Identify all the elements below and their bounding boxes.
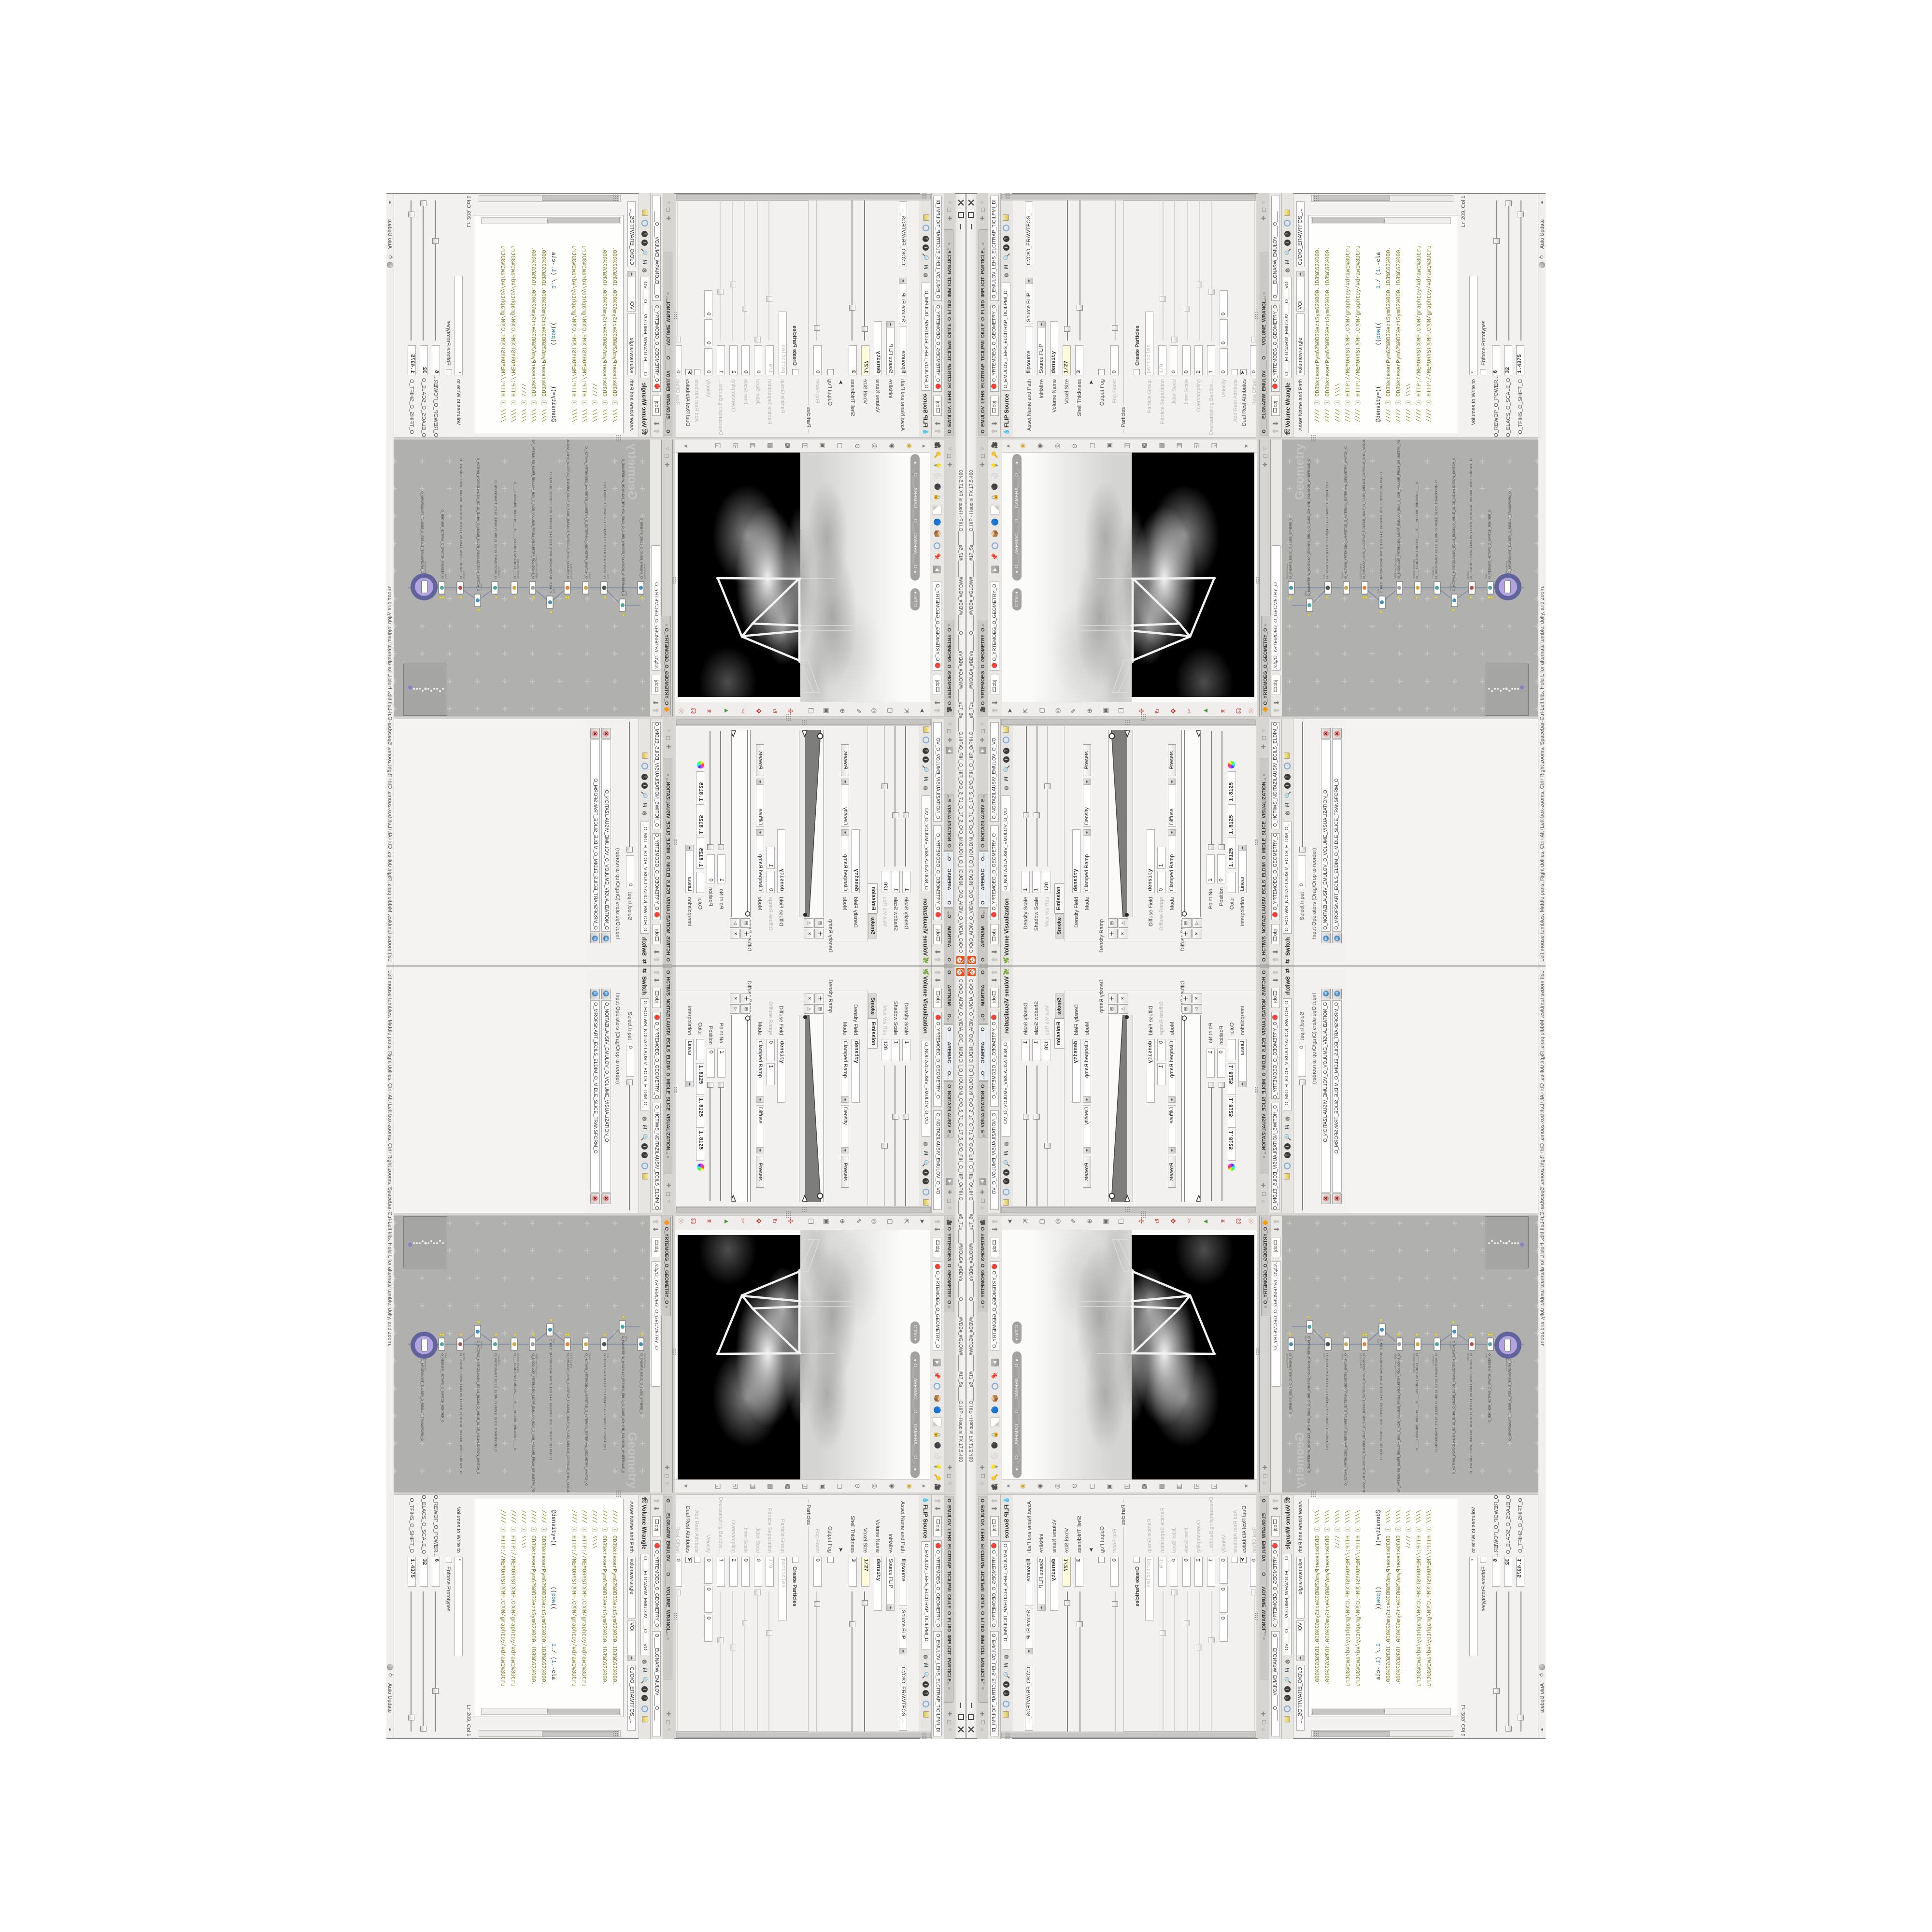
svg-text:O_SNOGILOP_YRTEMOEG_MORF_EMULO: O_SNOGILOP_YRTEMOEG_MORF_EMULOV_BDV_O_VD… bbox=[1397, 440, 1401, 579]
svg-text:O_HCTIWS_NOITAZILAUSIV_ECILS_E: O_HCTIWS_NOITAZILAUSIV_ECILS_ELDIM_O_MID… bbox=[476, 1341, 480, 1474]
svg-text:Volume Wrangle: Volume Wrangle bbox=[516, 1353, 519, 1373]
svg-text:Merge: Merge bbox=[462, 1353, 465, 1361]
svg-text:O_EMULOV_LEHS_ELCITRAP_TICILPM: O_EMULOV_LEHS_ELCITRAP_TICILPMI_DIULF_O_… bbox=[566, 1353, 569, 1492]
svg-text:O_MROFSNART_ECILS_ELDIM_O_MIDL: O_MROFSNART_ECILS_ELDIM_O_MIDLE_SLICE_TR… bbox=[1435, 480, 1438, 579]
svg-text:O_MROFSNART_TLUSER_O_RESULT_TR: O_MROFSNART_TLUSER_O_RESULT_TRANSFORM_O bbox=[420, 491, 424, 573]
svg-text:Merge: Merge bbox=[462, 571, 465, 579]
svg-text:Clip: Clip bbox=[552, 1339, 555, 1343]
svg-text:FLIP Source: FLIP Source bbox=[569, 564, 572, 579]
svg-text:Switch: Switch bbox=[588, 1353, 591, 1361]
svg-text:O_HCTIWS_YRTEMOEG_LANRETXE_O_I: O_HCTIWS_YRTEMOEG_LANRETXE_O_INTERNAL_EX… bbox=[1344, 1353, 1348, 1486]
svg-text:O____ELGNARW_EMULOV____O____VO: O____ELGNARW_EMULOV____O____VOLUME_WRANG… bbox=[1416, 482, 1419, 579]
svg-text:O_EMULOV_LEHS_ELCITRAP_TICILPM: O_EMULOV_LEHS_ELCITRAP_TICILPMI_DIULF_O_… bbox=[566, 440, 569, 579]
svg-text:Volume Wrangle: Volume Wrangle bbox=[516, 559, 519, 579]
svg-text:O_EMARFERIW_NOGYLOP_EREHPS_EBU: O_EMARFERIW_NOGYLOP_EREHPS_EBUC_O_CUBE_S… bbox=[621, 459, 625, 596]
svg-text:O_REDNER_HCTIWS_O_SWITCH_RENDE: O_REDNER_HCTIWS_O_SWITCH_RENDER_O bbox=[1488, 510, 1492, 579]
svg-text:O_ECAFRUS_HTIW_EMULOV_EGREM_O_: O_ECAFRUS_HTIW_EMULOV_EGREM_O_MERGE_VOLU… bbox=[1470, 458, 1473, 579]
svg-text:O_PILC_DNUORGKCAB_PIRTS_ECILS★: O_PILC_DNUORGKCAB_PIRTS_ECILS★O_GNIDDES_… bbox=[549, 1339, 553, 1460]
svg-text:O_EREHPS_EBUC_O_CUBE_SPHERE_O: O_EREHPS_EBUC_O_CUBE_SPHERE_O bbox=[639, 1353, 643, 1414]
svg-text:CubeSphere: CubeSphere bbox=[643, 1353, 646, 1368]
svg-text:O_BJO.8DV★O_8BD.PETS.TRIP★LS_O: O_BJO.8DV★O_8BD.PETS.TRIP★LS_O.SLDPRT.ST… bbox=[1325, 1353, 1329, 1450]
svg-text:O_EMARFERIW_NOGYLOP_EREHPS_EBU: O_EMARFERIW_NOGYLOP_EREHPS_EBUC_O_CUBE_S… bbox=[1307, 1336, 1311, 1473]
svg-text:O____ELGNARW_EMULOV____O____VO: O____ELGNARW_EMULOV____O____VOLUME_WRANG… bbox=[1416, 1353, 1419, 1450]
svg-text:O_PILC_DNUORGKCAB_PIRTS_ECILS★: O_PILC_DNUORGKCAB_PIRTS_ECILS★O_GNIDDES_… bbox=[1379, 1339, 1383, 1460]
svg-text:O_MROFSNART_ECILS_ELDIM_O_MIDL: O_MROFSNART_ECILS_ELDIM_O_MIDLE_SLICE_TR… bbox=[494, 1353, 497, 1452]
svg-text:O_MROFSNART_TLUSER_O_RESULT_TR: O_MROFSNART_TLUSER_O_RESULT_TRANSFORM_O bbox=[1508, 491, 1512, 573]
svg-text:O_EMULOV_LEHS_ELCITRAP_TICILPM: O_EMULOV_LEHS_ELCITRAP_TICILPMI_DIULF_O_… bbox=[1363, 1353, 1366, 1492]
svg-text:Switch: Switch bbox=[480, 583, 483, 591]
svg-text:FLIP Source: FLIP Source bbox=[569, 1353, 572, 1368]
svg-text:O_SNOGILOP_YRTEMOEG_MORF_EMULO: O_SNOGILOP_YRTEMOEG_MORF_EMULOV_BDV_O_VD… bbox=[1397, 1353, 1401, 1492]
svg-text:O_HCTIWS_YRTEMOEG_LANRETXE_O_I: O_HCTIWS_YRTEMOEG_LANRETXE_O_INTERNAL_EX… bbox=[584, 446, 588, 579]
svg-text:O_HCTIWS_NOITAZILAUSIV_ECILS_E: O_HCTIWS_NOITAZILAUSIV_ECILS_ELDIM_O_MID… bbox=[476, 458, 480, 591]
svg-text:File: File bbox=[606, 1353, 609, 1358]
svg-text:Null: Null bbox=[444, 574, 447, 579]
svg-text:O_SNOGILOP_YRTEMOEG_MORF_EMULO: O_SNOGILOP_YRTEMOEG_MORF_EMULOV_BDV_O_VD… bbox=[531, 440, 535, 579]
svg-text:O_HCTIWS_YRTEMOEG_LANRETXE_O_I: O_HCTIWS_YRTEMOEG_LANRETXE_O_INTERNAL_EX… bbox=[584, 1353, 588, 1486]
svg-text:O_PILC_DNUORGKCAB_PIRTS_ECILS★: O_PILC_DNUORGKCAB_PIRTS_ECILS★O_GNIDDES_… bbox=[549, 472, 553, 593]
svg-text:O_SNOGILOP_YRTEMOEG_MORF_EMULO: O_SNOGILOP_YRTEMOEG_MORF_EMULOV_BDV_O_VD… bbox=[531, 1353, 535, 1492]
svg-text:O_EREHPS_EBUC_O_CUBE_SPHERE_O: O_EREHPS_EBUC_O_CUBE_SPHERE_O bbox=[639, 518, 643, 579]
svg-text:O_REDNER_HCTIWS_O_SWITCH_RENDE: O_REDNER_HCTIWS_O_SWITCH_RENDER_O bbox=[440, 510, 444, 579]
svg-text:O_REDNER_HCTIWS_O_SWITCH_RENDE: O_REDNER_HCTIWS_O_SWITCH_RENDER_O bbox=[1488, 1353, 1492, 1422]
svg-text:Wire: Wire bbox=[625, 591, 627, 596]
svg-text:O____ELGNARW_EMULOV____O____VO: O____ELGNARW_EMULOV____O____VOLUME_WRANG… bbox=[513, 1353, 516, 1450]
svg-text:O_ECAFRUS_HTIW_EMULOV_EGREM_O_: O_ECAFRUS_HTIW_EMULOV_EGREM_O_MERGE_VOLU… bbox=[459, 1353, 462, 1474]
svg-text:O_ECAFRUS_HTIW_EMULOV_EGREM_O_: O_ECAFRUS_HTIW_EMULOV_EGREM_O_MERGE_VOLU… bbox=[1470, 1353, 1473, 1474]
svg-text:O_EMULOV_LEHS_ELCITRAP_TICILPM: O_EMULOV_LEHS_ELCITRAP_TICILPMI_DIULF_O_… bbox=[1363, 440, 1366, 579]
svg-text:O_ECAFRUS_HTIW_EMULOV_EGREM_O_: O_ECAFRUS_HTIW_EMULOV_EGREM_O_MERGE_VOLU… bbox=[459, 458, 462, 579]
svg-text:Transform: Transform bbox=[424, 1359, 426, 1371]
svg-text:O_BJO.8DV★O_8BD.PETS.TRIP★LS_O: O_BJO.8DV★O_8BD.PETS.TRIP★LS_O.SLDPRT.ST… bbox=[1325, 482, 1329, 579]
svg-text:Transform: Transform bbox=[497, 1353, 500, 1365]
svg-text:CubeSphere: CubeSphere bbox=[643, 564, 646, 579]
svg-text:O_EMARFERIW_NOGYLOP_EREHPS_EBU: O_EMARFERIW_NOGYLOP_EREHPS_EBUC_O_CUBE_S… bbox=[1307, 459, 1311, 596]
svg-text:O____ELGNARW_EMULOV____O____VO: O____ELGNARW_EMULOV____O____VOLUME_WRANG… bbox=[513, 482, 516, 579]
svg-text:O_HCTIWS_YRTEMOEG_LANRETXE_O_I: O_HCTIWS_YRTEMOEG_LANRETXE_O_INTERNAL_EX… bbox=[1344, 446, 1348, 579]
svg-text:Null: Null bbox=[444, 1353, 447, 1358]
svg-text:O_REDNER_HCTIWS_O_SWITCH_RENDE: O_REDNER_HCTIWS_O_SWITCH_RENDER_O bbox=[440, 1353, 444, 1422]
svg-text:Transform: Transform bbox=[497, 567, 500, 579]
svg-text:O_BJO.8DV★O_8BD.PETS.TRIP★LS_O: O_BJO.8DV★O_8BD.PETS.TRIP★LS_O.SLDPRT.ST… bbox=[603, 482, 607, 579]
svg-text:O_MROFSNART_ECILS_ELDIM_O_MIDL: O_MROFSNART_ECILS_ELDIM_O_MIDLE_SLICE_TR… bbox=[494, 480, 497, 579]
svg-text:O_EMARFERIW_NOGYLOP_EREHPS_EBU: O_EMARFERIW_NOGYLOP_EREHPS_EBUC_O_CUBE_S… bbox=[621, 1336, 625, 1473]
svg-text:O_HCTIWS_NOITAZILAUSIV_ECILS_E: O_HCTIWS_NOITAZILAUSIV_ECILS_ELDIM_O_MID… bbox=[1452, 458, 1456, 591]
svg-text:O_BJO.8DV★O_8BD.PETS.TRIP★LS_O: O_BJO.8DV★O_8BD.PETS.TRIP★LS_O.SLDPRT.ST… bbox=[603, 1353, 607, 1450]
svg-text:O_EREHPS_EBUC_O_CUBE_SPHERE_O: O_EREHPS_EBUC_O_CUBE_SPHERE_O bbox=[1289, 1353, 1293, 1414]
svg-text:O_MROFSNART_TLUSER_O_RESULT_TR: O_MROFSNART_TLUSER_O_RESULT_TRANSFORM_O bbox=[1508, 1359, 1512, 1441]
svg-text:VDB from Polygons: VDB from Polygons bbox=[535, 555, 538, 579]
svg-text:Clip: Clip bbox=[552, 589, 555, 593]
svg-text:O_MROFSNART_ECILS_ELDIM_O_MIDL: O_MROFSNART_ECILS_ELDIM_O_MIDLE_SLICE_TR… bbox=[1435, 1353, 1438, 1452]
svg-text:File: File bbox=[606, 574, 609, 579]
svg-text:Wire: Wire bbox=[625, 1336, 627, 1341]
svg-text:Switch: Switch bbox=[588, 571, 591, 579]
svg-text:O_EREHPS_EBUC_O_CUBE_SPHERE_O: O_EREHPS_EBUC_O_CUBE_SPHERE_O bbox=[1289, 518, 1293, 579]
svg-text:O_MROFSNART_TLUSER_O_RESULT_TR: O_MROFSNART_TLUSER_O_RESULT_TRANSFORM_O bbox=[420, 1359, 424, 1441]
svg-text:O_HCTIWS_NOITAZILAUSIV_ECILS_E: O_HCTIWS_NOITAZILAUSIV_ECILS_ELDIM_O_MID… bbox=[1452, 1341, 1456, 1474]
svg-text:Transform: Transform bbox=[424, 561, 426, 573]
svg-text:VDB from Polygons: VDB from Polygons bbox=[535, 1353, 538, 1377]
svg-text:O_PILC_DNUORGKCAB_PIRTS_ECILS★: O_PILC_DNUORGKCAB_PIRTS_ECILS★O_GNIDDES_… bbox=[1379, 472, 1383, 593]
svg-text:Switch: Switch bbox=[480, 1341, 483, 1349]
